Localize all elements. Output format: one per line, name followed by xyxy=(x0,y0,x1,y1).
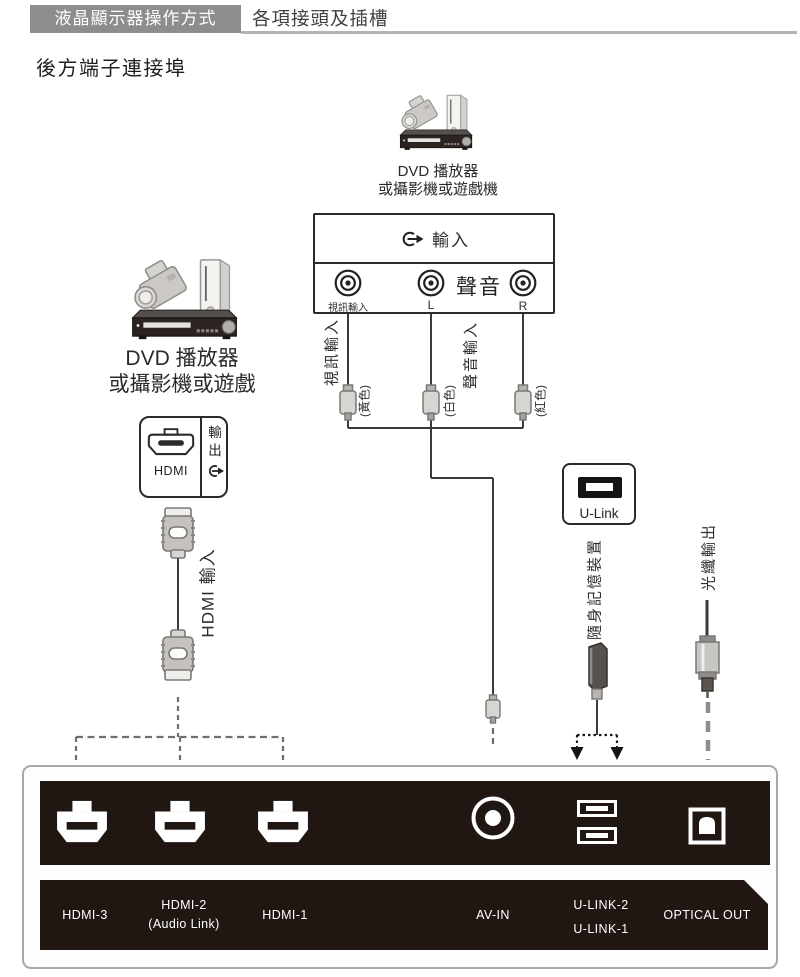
av-input-label: 輸入 xyxy=(432,226,470,251)
port-label-ulink: U-LINK-2 U-LINK-1 xyxy=(557,894,645,942)
avin-port-icon xyxy=(469,794,517,842)
header-divider xyxy=(241,31,797,34)
right-channel-label: R xyxy=(519,299,528,313)
optical-cable-icon xyxy=(696,636,719,698)
white-plug-label: (白色) xyxy=(441,385,458,417)
red-plug-label: (紅色) xyxy=(532,385,549,417)
optical-port-icon xyxy=(688,807,726,845)
video-jack-icon xyxy=(333,268,363,298)
av-input-header: 輸入 xyxy=(315,215,553,264)
left-channel-label: L xyxy=(428,298,435,312)
header-chapter-tab: 液晶顯示器操作方式 xyxy=(30,5,241,33)
hdmi-input-vertical-label: HDMI 輸入 xyxy=(194,548,219,637)
left-device-caption: DVD 播放器 或攝影機或遊戲 xyxy=(72,346,292,399)
audio-left-jack-icon xyxy=(416,268,446,298)
ulink-box: U-Link xyxy=(562,463,636,525)
yellow-plug-label: (黃色) xyxy=(356,385,373,417)
rca-plug-avin-icon xyxy=(486,695,500,723)
top-device-caption-line2: 或攝影機或遊戲機 xyxy=(338,181,538,199)
usb-port-icon xyxy=(577,476,623,499)
hdmi-port-label: HDMI xyxy=(141,464,201,478)
audio-right-jack-icon xyxy=(508,268,538,298)
port-label-hdmi1: HDMI-1 xyxy=(245,906,325,925)
hdmi1-port-icon xyxy=(256,799,310,845)
usb-stick-icon xyxy=(589,643,607,699)
audio-input-vertical-label: 聲音輸入 xyxy=(460,321,481,389)
hdmi-output-label: 輸出 xyxy=(204,424,226,460)
hdmi-output-box: HDMI 輸出 xyxy=(139,416,228,498)
ulink-label: U-Link xyxy=(564,506,634,521)
usb-device-vertical-label: 隨身記憶裝置 xyxy=(584,538,605,640)
top-device-caption: DVD 播放器 或攝影機或遊戲機 xyxy=(338,163,538,199)
hdmi-port-icon xyxy=(147,427,195,459)
ulink1-port-icon xyxy=(577,827,617,844)
video-input-vertical-label: 視訊輸入 xyxy=(321,318,342,386)
hdmi2-port-icon xyxy=(153,799,207,845)
port-label-optical: OPTICAL OUT xyxy=(655,906,759,925)
port-label-hdmi3: HDMI-3 xyxy=(45,906,125,925)
port-label-avin: AV-IN xyxy=(453,906,533,925)
input-arrow-icon xyxy=(398,231,424,247)
usb-arrow-icons xyxy=(571,747,624,760)
rca-plug-red-icon xyxy=(515,385,531,420)
manual-page: 液晶顯示器操作方式 各項接頭及插槽 後方端子連接埠 DVD 播放器 或攝影機或遊… xyxy=(0,0,800,977)
rca-plug-white-icon xyxy=(423,385,439,420)
dvd-camcorder-console-icon xyxy=(393,90,477,153)
rca-plug-yellow-icon xyxy=(340,385,356,420)
optical-output-vertical-label: 光纖輸出 xyxy=(698,523,719,591)
left-device-caption-line2: 或攝影機或遊戲 xyxy=(72,372,292,398)
port-label-hdmi2: HDMI-2 (Audio Link) xyxy=(134,896,234,934)
hdmi-box-divider xyxy=(200,418,202,496)
output-arrow-icon xyxy=(205,464,225,478)
top-device-caption-line1: DVD 播放器 xyxy=(338,163,538,181)
left-device-caption-line1: DVD 播放器 xyxy=(72,346,292,372)
header-section-title: 各項接頭及插槽 xyxy=(252,5,389,33)
dvd-camcorder-console-icon xyxy=(122,252,244,344)
page-title: 後方端子連接埠 xyxy=(36,52,187,81)
ulink2-port-icon xyxy=(577,800,617,817)
audio-label: 聲音 xyxy=(456,271,502,301)
video-jack-label: 視訊輸入 xyxy=(328,299,368,314)
hdmi3-port-icon xyxy=(55,799,109,845)
rear-panel-port-bar xyxy=(40,781,770,865)
